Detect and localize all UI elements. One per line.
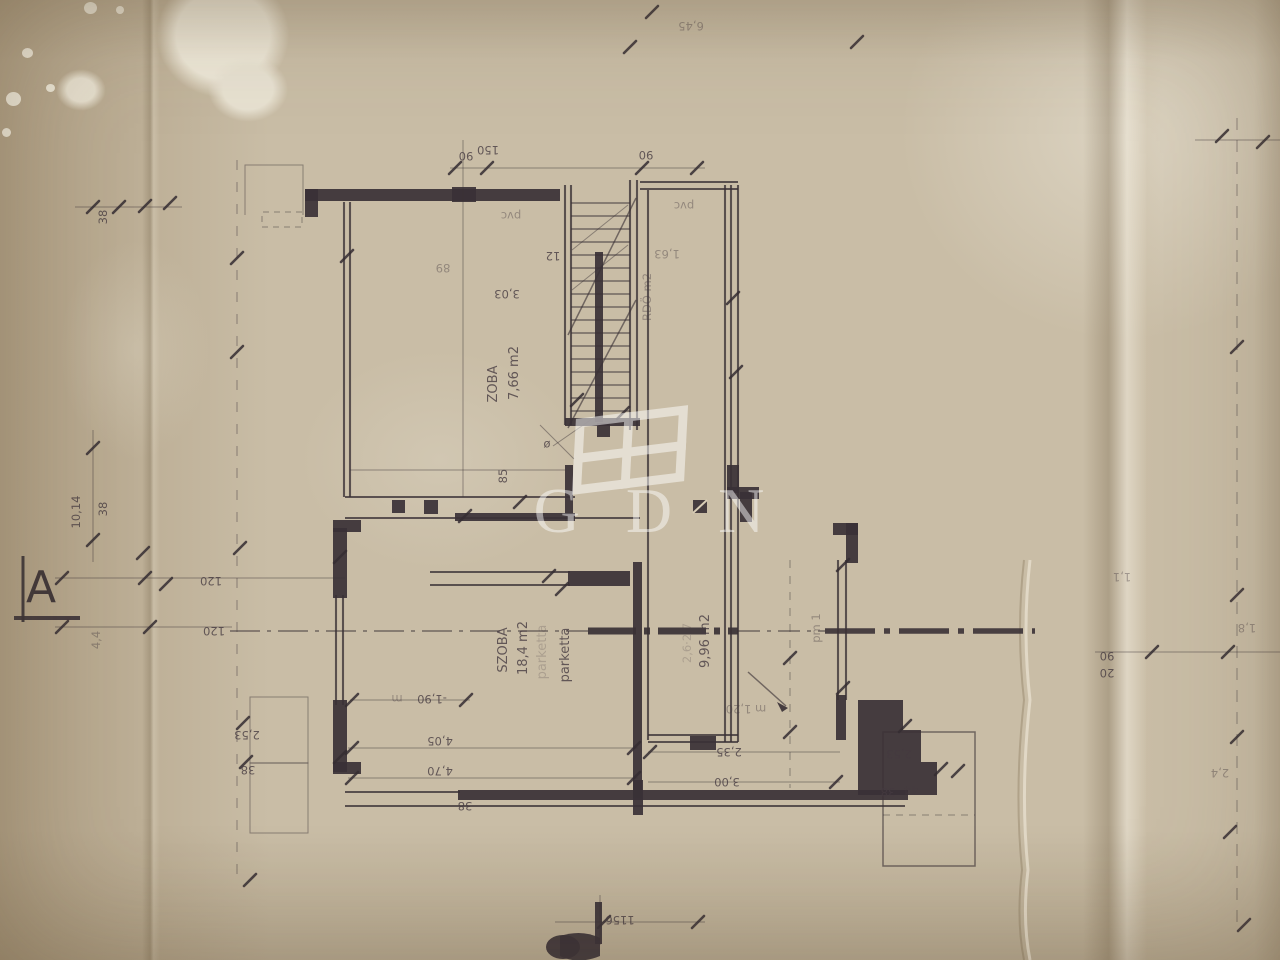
dimension-label: 1,63 <box>654 247 680 261</box>
dimension-label: 2,35 <box>716 745 742 759</box>
dimension-label: 1,8 <box>1238 621 1256 635</box>
dimension-label: 38 <box>96 502 110 517</box>
paper-fold-line <box>1018 560 1030 960</box>
dimension-label: 44 <box>904 783 919 797</box>
annotation-label: pm 1 <box>809 613 823 642</box>
level-mark-label: m 1,20 <box>726 702 766 716</box>
dimension-label: 3,03 <box>494 287 520 301</box>
dimension-label: 20 <box>1100 666 1115 680</box>
room-name-label: ZOBA <box>486 365 501 402</box>
watermark-text: GDN <box>534 475 811 546</box>
dimension-label: 2,53 <box>886 747 912 761</box>
dimension-label: 1,1 <box>1113 570 1131 584</box>
dimension-label: 4,4 <box>89 631 103 649</box>
room-name-label: SZOBA <box>496 627 511 672</box>
level-mark-label: -1,90 <box>417 692 447 706</box>
ghost-text: 2,6·2,7 <box>680 623 694 663</box>
room-area-label: 9,96 m2 <box>698 614 713 668</box>
staircase <box>565 198 640 428</box>
floor-plan-drawing: A <box>0 0 1280 960</box>
dimension-label: 89 <box>436 261 451 275</box>
dimension-label: 10,14 <box>69 496 83 529</box>
dimension-label: 90 <box>639 148 654 162</box>
ghost-text: parketta <box>535 625 550 680</box>
section-marker-letter: A <box>26 562 56 613</box>
dimension-label: 38 <box>241 763 256 777</box>
dimension-label: 38 <box>458 799 473 813</box>
photographed-floor-plan: A <box>0 0 1280 960</box>
dimension-label: 90 <box>459 149 474 163</box>
dimension-label: 6,45 <box>678 19 704 33</box>
dimension-label: 90 <box>1100 649 1115 663</box>
dimension-label: 2,53 <box>234 728 260 742</box>
dimension-label: 150 <box>477 143 499 157</box>
stair-count-label: 12 <box>546 249 561 263</box>
dimension-label: 38 <box>96 210 110 225</box>
dimension-label: 2,4 <box>1211 766 1229 780</box>
dimension-label: 38 <box>881 785 896 799</box>
section-marker-a: A <box>14 556 80 622</box>
floor-material-label: pvc <box>501 209 521 223</box>
room-name-label: RDÖ m2 <box>638 273 654 321</box>
dimension-label: 3,00 <box>714 775 740 789</box>
dimension-label: 120 <box>203 624 225 638</box>
ink-mark <box>546 902 602 960</box>
floor-material-label: pvc <box>674 199 694 213</box>
dimension-label: 4,70 <box>427 764 453 778</box>
dimension-label: 85 <box>496 469 510 484</box>
dimension-label: 120 <box>200 574 222 588</box>
room-area-label: 18,4 m2 <box>516 621 531 675</box>
dimension-label: 4,05 <box>427 734 453 748</box>
dimension-label: 1156 <box>605 913 634 927</box>
level-mark-label: m <box>391 692 402 706</box>
floor-material-label: parketta <box>558 628 573 683</box>
room-area-label: 7,66 m2 <box>507 346 522 400</box>
diameter-symbol: ø <box>543 438 550 452</box>
